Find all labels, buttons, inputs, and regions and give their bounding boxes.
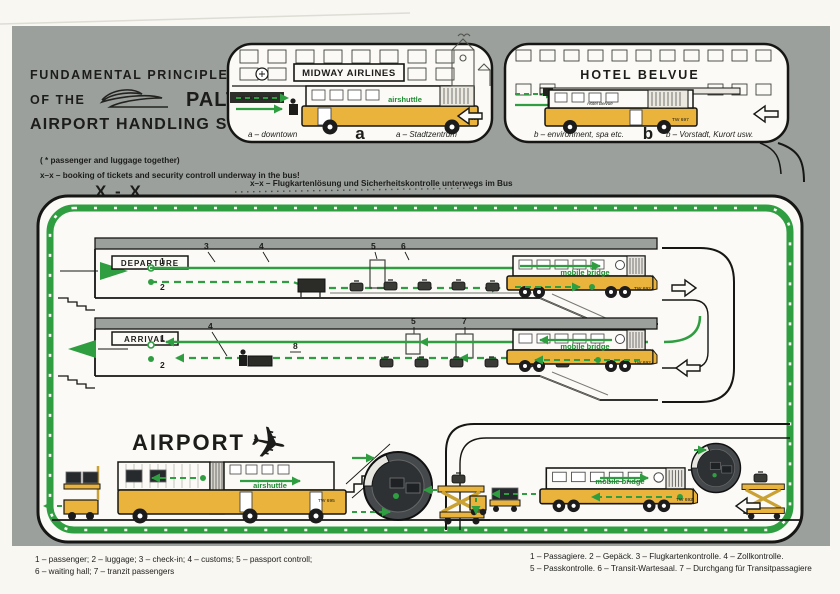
passenger-figure-body — [239, 355, 247, 366]
caption-b-german: b – Vorstadt, Kurort usw. — [666, 130, 753, 139]
arrival-ceiling — [95, 318, 657, 329]
title-line2-prefix: OF THE — [30, 93, 85, 107]
caption-a-english: a – downtown — [248, 130, 298, 139]
num-transit: 7 — [462, 316, 467, 326]
porter-figure-head — [290, 98, 295, 103]
container-icon — [150, 470, 166, 482]
aircraft-fuselage-section — [364, 452, 432, 520]
hotel-sign-text: HOTEL BELVUE — [580, 68, 699, 82]
num-passport: 5 — [371, 241, 376, 251]
departure-ceiling — [95, 238, 657, 249]
num-passenger: 1 — [160, 333, 165, 343]
vehicle-label: mobile bridge — [560, 268, 609, 277]
num-passport: 5 — [411, 316, 416, 326]
porter-figure-body — [289, 104, 298, 115]
zone-letter-a: a — [355, 124, 365, 143]
airshuttle-articulated-bus: airshuttle TW 695 — [118, 462, 346, 524]
bus-fleet-number: TW 695 — [318, 498, 335, 504]
num-customs: 4 — [259, 241, 264, 251]
legend-en-line1: 1 – passenger; 2 – luggage; 3 – check-in… — [35, 555, 312, 564]
container-icon — [83, 472, 98, 483]
vehicle-label: mobile bridge — [560, 342, 609, 351]
container-icon — [66, 472, 81, 483]
diagram-canvas: FUNDAMENTAL PRINCIPLES OF THE PALT * AIR… — [0, 0, 840, 594]
num-luggage: 2 — [160, 360, 165, 370]
num-customs: 4 — [208, 321, 213, 331]
vehicle-label: mobile bridge — [595, 477, 644, 486]
bus-brand-text: airshuttle — [253, 481, 287, 490]
container-icon — [126, 470, 142, 482]
luggage-end-dot — [148, 356, 154, 362]
legend-de-line1: 1 – Passagiere. 2 – Gepäck. 3 – Flugkart… — [530, 552, 784, 561]
num-checkin: 3 — [204, 241, 209, 251]
passenger-end-dot — [148, 342, 154, 348]
footnote-star: ( * passenger and luggage together) — [40, 156, 180, 165]
bus-door — [630, 110, 642, 125]
airport-label: AIRPORT — [132, 430, 245, 455]
vehicle-number: TW 692 — [634, 286, 651, 292]
num-passenger: 1 — [160, 256, 165, 266]
claim-belt — [248, 356, 272, 366]
airline-sign-text: MIDWAY AIRLINES — [302, 68, 396, 79]
caption-b-english: b – environment, spa etc. — [534, 130, 624, 139]
vehicle-number: TW 692 — [676, 497, 693, 503]
title-line1: FUNDAMENTAL PRINCIPLES — [30, 68, 238, 82]
scanned-page: FUNDAMENTAL PRINCIPLES OF THE PALT * AIR… — [0, 0, 840, 594]
bus-side-text: Hotel Belvue — [587, 101, 613, 106]
vehicle-number: TW 692 — [634, 360, 651, 366]
bus-fleet-number: TW 697 — [672, 117, 689, 123]
passenger-figure-head — [240, 349, 245, 354]
scene-a-downtown: MIDWAY AIRLINES DEPARTURES airshuttle TW… — [228, 34, 492, 143]
legend-en-line2: 6 – waiting hall; 7 – tranzit passengers — [35, 567, 174, 576]
bus-brand-text: airshuttle — [388, 95, 422, 104]
scene-b-hotel: HOTEL BELVUE Hotel Belvue TW 697 b – env… — [505, 44, 788, 143]
zone-letter-b: b — [643, 124, 653, 143]
legend-de-line2: 5 – Passkontrolle. 6 – Transit-Wartesaal… — [530, 564, 812, 573]
caption-a-german: a – Stadtzentrum — [396, 130, 457, 139]
num-waiting-hall: 6 — [401, 241, 406, 251]
note-xx-german: x–x – Flugkartenlösung und Sicherheitsko… — [250, 179, 513, 188]
num-luggage: 2 — [160, 282, 165, 292]
checkin-xray-machine — [298, 279, 325, 292]
